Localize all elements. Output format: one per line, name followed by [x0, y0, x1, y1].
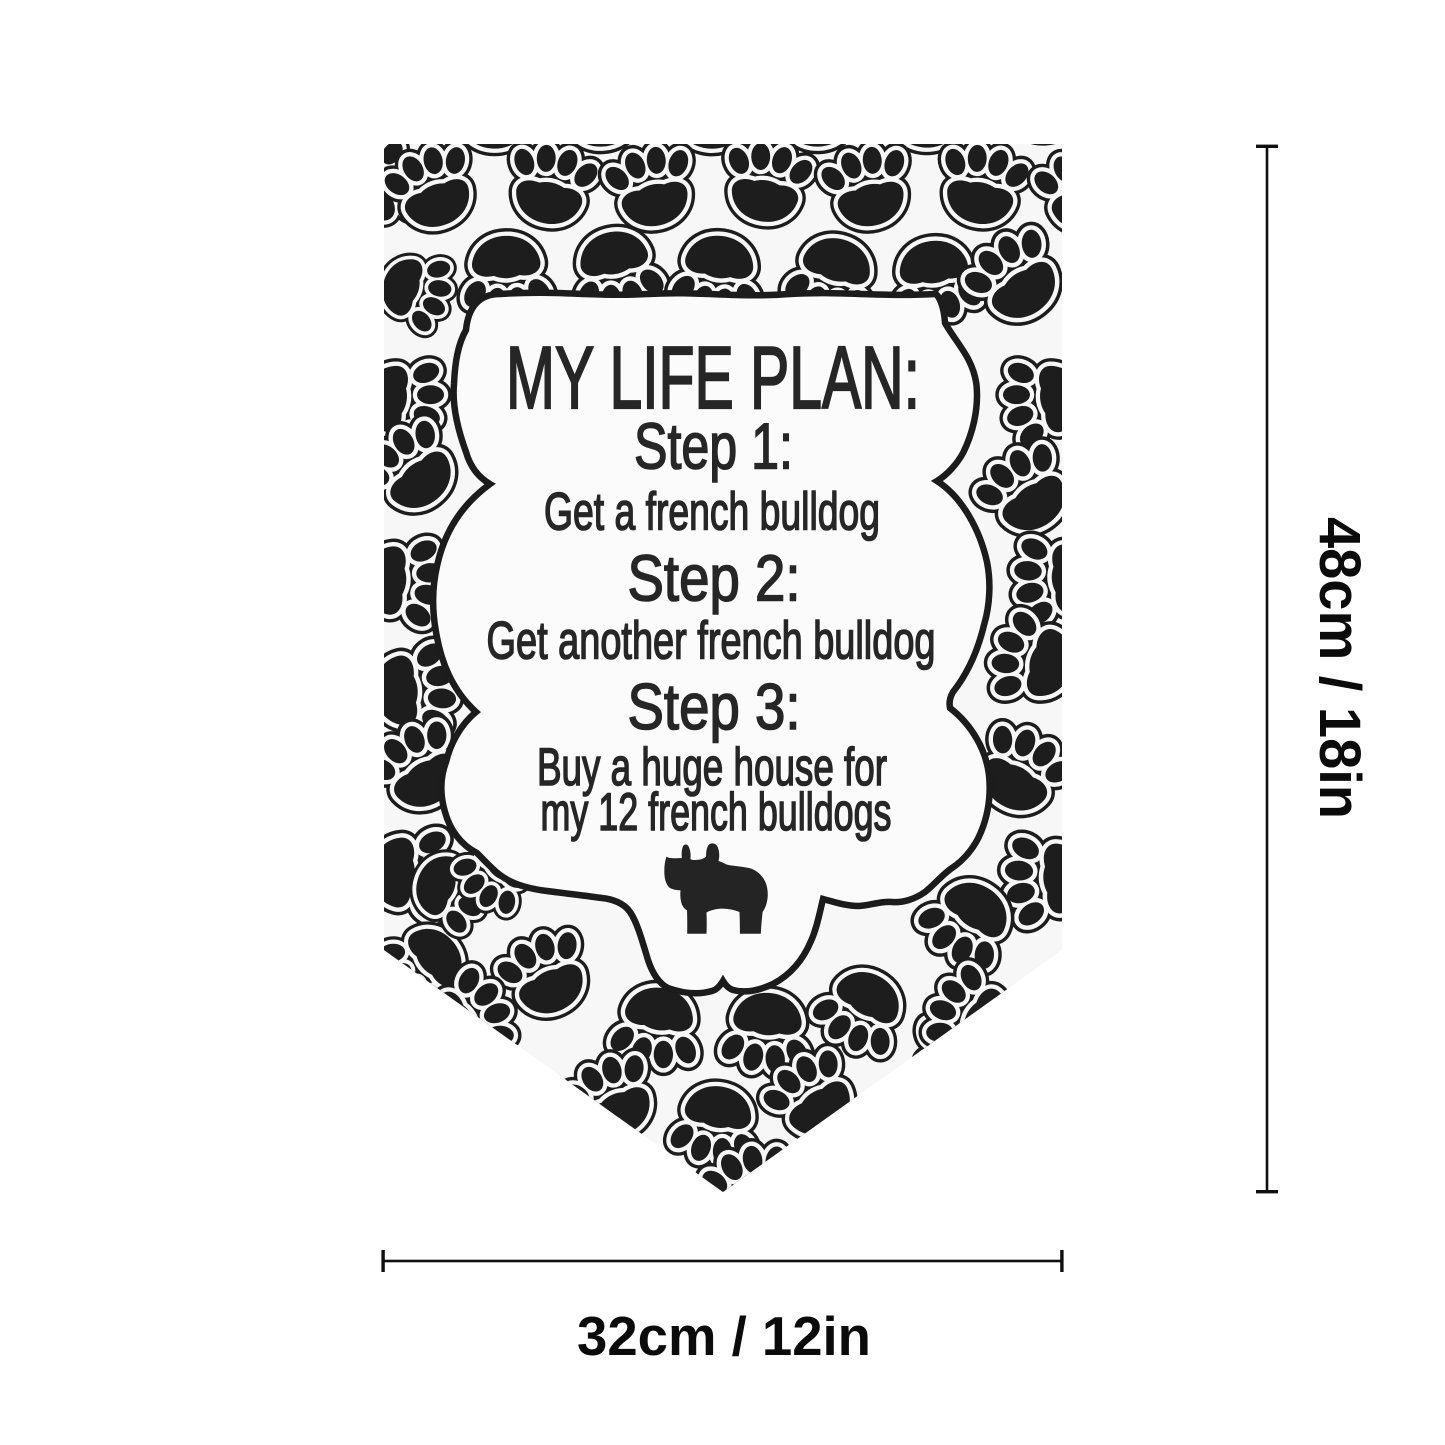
- svg-text:Get another french bulldog: Get another french bulldog: [487, 612, 936, 671]
- svg-text:Step 3:: Step 3:: [628, 670, 801, 743]
- svg-text:Step 1:: Step 1:: [634, 410, 793, 483]
- svg-text:Step 2:: Step 2:: [628, 542, 801, 615]
- svg-text:48cm / 18in: 48cm / 18in: [1307, 517, 1372, 819]
- svg-text:my 12 french bulldogs: my 12 french bulldogs: [541, 783, 892, 842]
- svg-text:32cm / 12in: 32cm / 12in: [577, 1305, 871, 1367]
- svg-text:Get a french bulldog: Get a french bulldog: [544, 483, 880, 542]
